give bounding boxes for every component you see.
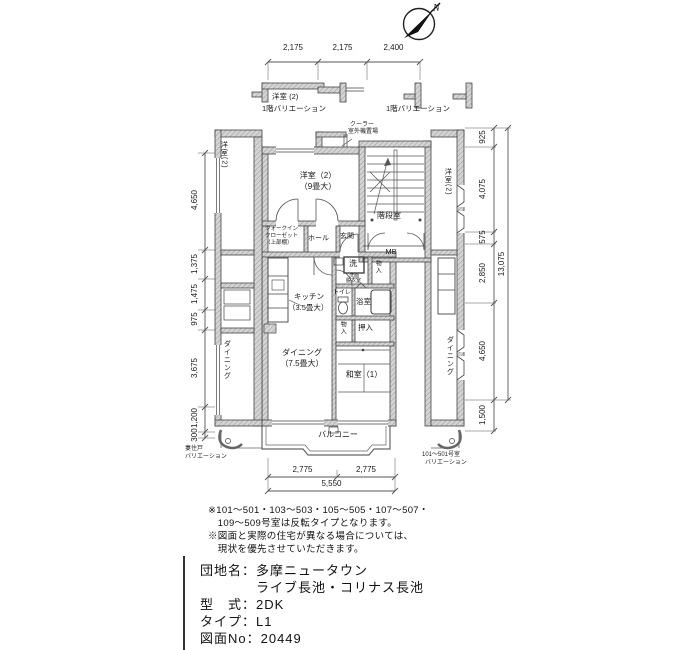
top-dimension-line: [265, 59, 423, 80]
first-floor-variation-fragment-left: [252, 83, 364, 102]
room-stairwell-label: 階段室: [366, 212, 412, 220]
room-balcony-label: バルコニー: [308, 431, 368, 439]
dim-right-5: 4,650: [479, 331, 491, 371]
dim-left-1: 4,650: [191, 180, 203, 220]
dim-left-5: 3,675: [191, 348, 203, 388]
right-neighbor-dining-label: ダイニング: [446, 336, 453, 376]
room-toilet-label: トイレ: [333, 290, 351, 296]
info-drawing-number: 図面No：20449: [200, 628, 302, 647]
dim-bottom-total: 5,550: [268, 480, 395, 488]
dim-right-1: 925: [479, 117, 491, 157]
washroom-label-line2: 脱衣室: [346, 279, 361, 284]
dim-right-2: 4,075: [479, 169, 491, 209]
floor-plan-page: N 2,175 2,175 2,400 洋室 (2) 1階バリエーション 1階バ…: [0, 0, 700, 650]
dim-left-7: 300: [191, 415, 203, 455]
note-line-1: ※101～501・103～503・105～505・107～507・: [208, 502, 429, 516]
fragment-left-variation-label: 1階バリエーション: [262, 105, 326, 113]
storage2-label: 物入: [339, 321, 345, 335]
info-block-rule: [183, 556, 185, 650]
room-wic-label-line3: （上部棚）: [265, 241, 293, 247]
room-dining-label: ダイニング: [278, 349, 326, 357]
rooms-101-501-variation-line2: バリエーション: [425, 460, 467, 466]
room-meter-box-label: MB: [380, 248, 402, 256]
fragment-left-room-label: 洋室 (2): [272, 93, 298, 101]
rooms-101-501-variation-line1: 101～501号室: [422, 452, 460, 458]
note-line-2: 109～509号室は反転タイプとなります。: [208, 515, 397, 529]
room-bath-label: 浴室: [356, 298, 371, 306]
dim-bottom-2: 2,775: [337, 466, 395, 474]
dim-top-3: 2,400: [367, 44, 420, 52]
left-neighbor-bedroom-label: 洋室(2): [220, 141, 227, 169]
room-oshiire-label: 押入: [358, 324, 373, 332]
dim-right-6: 1,500: [479, 395, 491, 435]
note-line-3: ※図面と実際の住宅が異なる場合については、: [208, 528, 413, 542]
ac-outdoor-unit-alcove: [316, 132, 352, 147]
room-entrance-label: 玄関: [340, 233, 354, 240]
room-kitchen-size: （3.5畳大）: [288, 304, 328, 312]
room-wic-label-line1: ウォークイン: [265, 227, 298, 233]
room-dining-size: （7.5畳大）: [274, 360, 330, 368]
dim-right-total: 13,075: [498, 242, 510, 286]
room-hall-label: ホール: [308, 235, 329, 242]
room-bedroom2-label: 洋室（2）: [288, 172, 348, 180]
room-wic-label-line2: クローゼット: [265, 234, 298, 240]
dim-bottom-1: 2,775: [268, 466, 337, 474]
ac-unit-label-line2: 室外機置場: [348, 129, 378, 135]
room-bedroom2-size: （9畳大）: [288, 183, 348, 191]
left-neighbor-unit: [214, 130, 262, 426]
dim-top-2: 2,175: [318, 44, 367, 52]
room-kitchen-label: キッチン: [294, 293, 324, 301]
storage1-label: 物入: [374, 260, 380, 274]
ac-unit-label-line1: クーラー: [350, 122, 374, 128]
fragment-right-variation-label: 1階バリエーション: [386, 105, 450, 113]
dim-right-3: 575: [479, 217, 491, 257]
note-line-4: 現状を優先させていただきます。: [208, 541, 364, 555]
dim-top-1: 2,175: [268, 44, 318, 52]
room-washitsu-label: 和室（1）: [340, 371, 388, 379]
left-neighbor-dining-label: ダイニング: [223, 340, 230, 380]
right-neighbor-bedroom-label: 洋室(2): [444, 168, 451, 196]
bottom-dimension-lines: [265, 458, 398, 494]
compass-north-label: N: [433, 3, 440, 14]
washer-label: 洗: [349, 260, 357, 268]
dim-right-4: 2,850: [479, 253, 491, 293]
dim-left-4: 975: [191, 299, 203, 339]
